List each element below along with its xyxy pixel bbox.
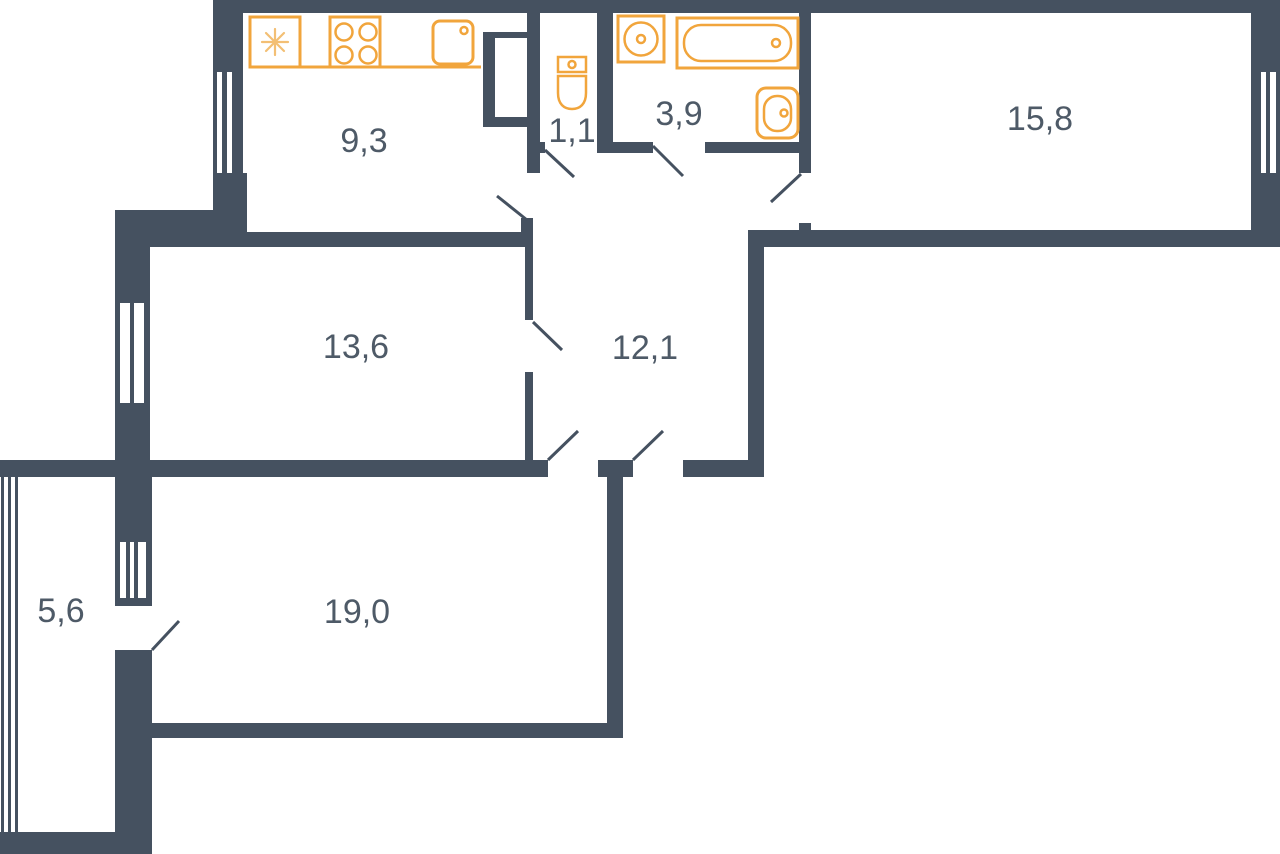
wall bbox=[521, 218, 533, 233]
room-label-balcony: 5,6 bbox=[37, 592, 84, 630]
floor-plan: 9,3 1,1 3,9 15,8 13,6 12,1 19,0 5,6 bbox=[0, 0, 1280, 854]
bathtub-basin bbox=[684, 25, 791, 61]
door-entrance bbox=[633, 431, 663, 460]
window-glazing-line bbox=[15, 477, 18, 832]
stove-burner bbox=[360, 24, 377, 41]
sink-faucet bbox=[461, 27, 468, 34]
wall bbox=[152, 723, 623, 738]
wall bbox=[799, 13, 811, 173]
door-room-top-right bbox=[771, 174, 801, 202]
room-label-room-top-right: 15,8 bbox=[1007, 100, 1073, 138]
wall bbox=[527, 142, 545, 153]
toilet-tank bbox=[558, 57, 586, 72]
wall bbox=[705, 142, 811, 153]
door-balcony bbox=[152, 621, 179, 650]
floor-plan-canvas: 9,3 1,1 3,9 15,8 13,6 12,1 19,0 5,6 bbox=[0, 0, 1280, 854]
window-glazing-line bbox=[130, 303, 134, 403]
bathtub-drain bbox=[772, 39, 780, 47]
wall bbox=[213, 13, 243, 72]
wall bbox=[115, 247, 150, 303]
wall bbox=[483, 32, 527, 38]
room-labels: 9,3 1,1 3,9 15,8 13,6 12,1 19,0 5,6 bbox=[37, 95, 1073, 631]
window-glazing-line bbox=[232, 72, 243, 173]
wall bbox=[483, 32, 495, 127]
wall bbox=[525, 372, 533, 460]
door-kitchen bbox=[497, 196, 527, 220]
stove-burner bbox=[336, 24, 353, 41]
window-glazing-line bbox=[8, 477, 11, 832]
balcony-glazing bbox=[1, 477, 18, 832]
toilet-bowl bbox=[558, 76, 586, 109]
window-glazing-line bbox=[222, 72, 227, 173]
round-washbasin-icon bbox=[618, 16, 664, 62]
wall bbox=[748, 230, 764, 460]
wall bbox=[115, 232, 533, 247]
window-glazing-line bbox=[1276, 72, 1280, 173]
room-label-room-middle-left: 13,6 bbox=[323, 328, 389, 366]
wall bbox=[597, 13, 613, 153]
window-room-top-right bbox=[1251, 72, 1280, 173]
wall bbox=[0, 460, 548, 477]
wall bbox=[115, 598, 152, 606]
washbasin-icon bbox=[757, 88, 798, 138]
room-label-room-bottom: 19,0 bbox=[324, 593, 390, 631]
kitchen-sink-icon bbox=[433, 21, 473, 64]
room-label-wc: 1,1 bbox=[548, 112, 595, 150]
stove-icon bbox=[330, 17, 380, 67]
basin-drain bbox=[637, 35, 645, 43]
window-glazing-line bbox=[134, 542, 138, 598]
window-glazing-line bbox=[1251, 72, 1261, 173]
stove-burner bbox=[336, 47, 353, 64]
wall bbox=[748, 230, 1280, 247]
wall bbox=[0, 832, 152, 854]
fridge-icon bbox=[250, 17, 300, 67]
wall bbox=[1251, 13, 1280, 72]
wall bbox=[213, 0, 1280, 13]
window-room-middle-left bbox=[115, 303, 150, 403]
wall bbox=[683, 460, 764, 477]
doors bbox=[152, 146, 801, 650]
window-balcony-wall bbox=[115, 542, 152, 598]
toilet-icon bbox=[558, 57, 586, 109]
walls bbox=[0, 0, 1280, 854]
wall bbox=[525, 247, 533, 320]
window-glazing-line bbox=[115, 303, 120, 403]
window-kitchen bbox=[213, 72, 243, 173]
door-room-bottom bbox=[548, 431, 578, 460]
room-label-hallway: 12,1 bbox=[612, 329, 678, 367]
washbasin-faucet bbox=[781, 110, 788, 117]
room-label-kitchen: 9,3 bbox=[340, 122, 387, 160]
wall bbox=[598, 460, 633, 477]
wall bbox=[115, 650, 152, 854]
window-glazing-line bbox=[213, 72, 217, 173]
wall bbox=[483, 117, 527, 127]
bathtub-icon bbox=[677, 18, 798, 68]
toilet-button bbox=[569, 61, 576, 68]
wall bbox=[115, 477, 152, 542]
basin-bowl bbox=[625, 23, 658, 56]
room-label-bathroom: 3,9 bbox=[655, 95, 702, 133]
door-wc bbox=[545, 150, 574, 177]
window-glazing-line bbox=[115, 542, 120, 598]
window-glazing-line bbox=[126, 542, 130, 598]
window-glazing-line bbox=[146, 542, 152, 598]
door-bathroom bbox=[653, 146, 683, 176]
window-glazing-line bbox=[1266, 72, 1270, 173]
wall bbox=[597, 142, 653, 153]
wall bbox=[1251, 173, 1280, 247]
stove-burner bbox=[360, 47, 377, 64]
window-glazing-line bbox=[144, 303, 150, 403]
wall bbox=[607, 477, 623, 738]
door-room-middle-left bbox=[533, 322, 562, 350]
wall bbox=[115, 403, 150, 460]
window-glazing-line bbox=[1, 477, 4, 832]
